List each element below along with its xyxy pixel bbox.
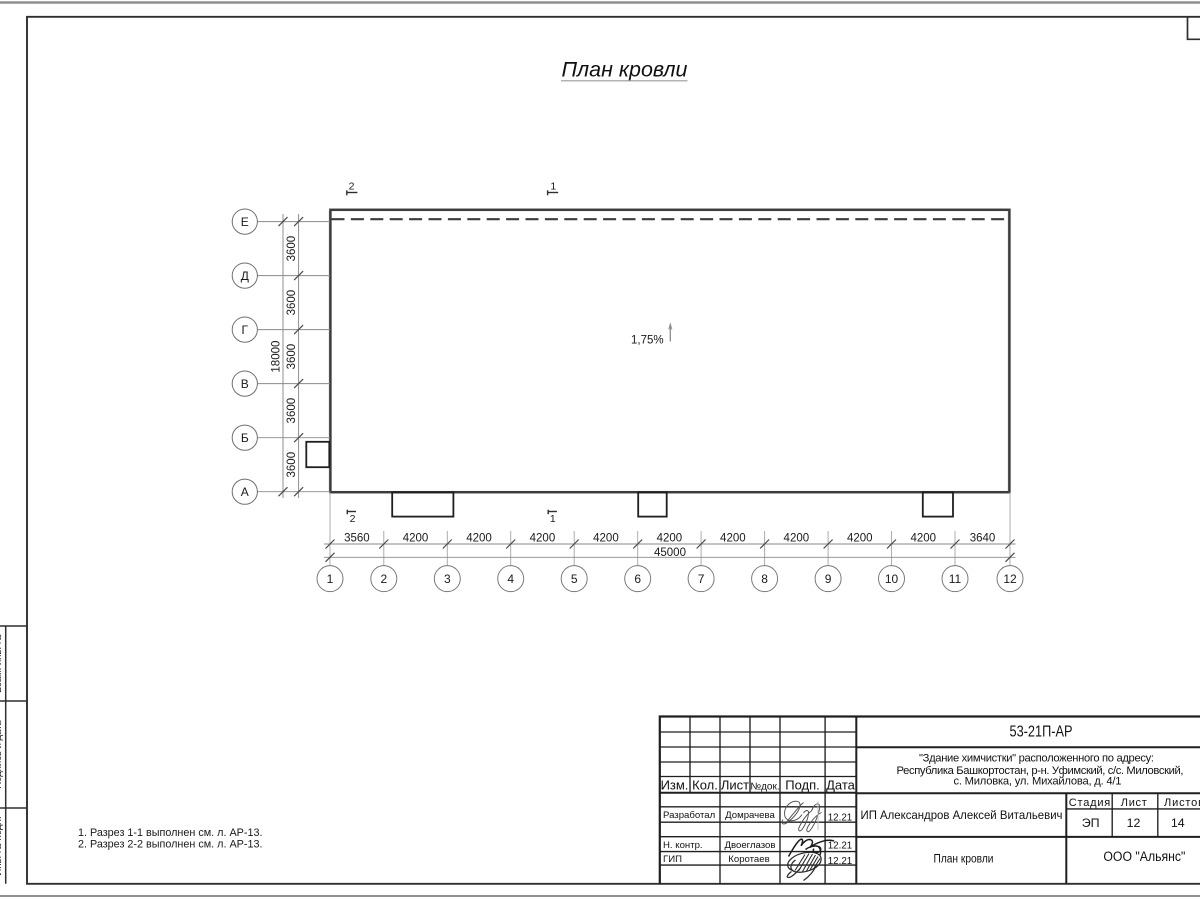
svg-text:3600: 3600 <box>286 344 298 370</box>
svg-text:Коротаев: Коротаев <box>728 854 769 865</box>
svg-text:4: 4 <box>507 572 514 586</box>
svg-text:2. Разрез 2-2 выполнен см. л.: 2. Разрез 2-2 выполнен см. л. АР-13. <box>78 838 262 850</box>
svg-text:12: 12 <box>1127 816 1141 830</box>
svg-text:4200: 4200 <box>910 533 936 545</box>
svg-text:6: 6 <box>634 572 641 586</box>
svg-text:Подп.: Подп. <box>785 778 820 793</box>
svg-text:2: 2 <box>350 513 356 525</box>
svg-text:Б: Б <box>241 431 249 445</box>
svg-text:Н. контр.: Н. контр. <box>663 840 703 851</box>
svg-text:12.21: 12.21 <box>828 856 853 867</box>
svg-text:1: 1 <box>550 181 556 193</box>
svg-text:2: 2 <box>349 181 355 193</box>
svg-text:12: 12 <box>1003 572 1017 586</box>
svg-text:3560: 3560 <box>344 533 370 545</box>
svg-text:План кровли: План кровли <box>934 854 994 866</box>
svg-text:4200: 4200 <box>657 533 683 545</box>
svg-text:10: 10 <box>885 572 899 586</box>
svg-text:7: 7 <box>698 572 705 586</box>
svg-text:Взам. инв. №: Взам. инв. № <box>0 634 4 693</box>
svg-text:с. Миловка, ул. Михайлова, д.: с. Миловка, ул. Михайлова, д. 4/1 <box>954 776 1122 788</box>
svg-text:Листов: Листов <box>1164 797 1200 809</box>
svg-text:Д: Д <box>241 269 249 283</box>
svg-text:4200: 4200 <box>593 533 619 545</box>
svg-text:Изм.: Изм. <box>661 778 689 793</box>
svg-text:Лист: Лист <box>1121 797 1147 809</box>
svg-text:Г: Г <box>242 323 249 337</box>
svg-text:План кровли: План кровли <box>562 58 688 81</box>
svg-text:Е: Е <box>241 215 249 229</box>
svg-text:12.21: 12.21 <box>828 841 853 852</box>
svg-text:1. Разрез 1-1 выполнен см. л.: 1. Разрез 1-1 выполнен см. л. АР-13. <box>78 827 262 839</box>
svg-text:14: 14 <box>1171 816 1185 830</box>
svg-text:ГИП: ГИП <box>663 854 682 865</box>
svg-text:Стадия: Стадия <box>1069 797 1111 809</box>
svg-text:3600: 3600 <box>286 236 298 262</box>
svg-text:2: 2 <box>380 572 387 586</box>
svg-text:5: 5 <box>571 572 578 586</box>
svg-text:Разработал: Разработал <box>663 810 715 821</box>
svg-text:Дата: Дата <box>826 778 856 793</box>
svg-text:Лист: Лист <box>721 778 749 793</box>
svg-text:3600: 3600 <box>286 398 298 424</box>
svg-text:Кол.: Кол. <box>692 778 718 793</box>
svg-text:ИП Александров Алексей Виталье: ИП Александров Алексей Витальевич <box>861 809 1063 822</box>
svg-text:18000: 18000 <box>271 341 283 373</box>
svg-text:А: А <box>241 485 249 499</box>
svg-text:12.21: 12.21 <box>828 812 853 823</box>
svg-text:1: 1 <box>327 572 334 586</box>
svg-text:Инв. № подл.: Инв. № подл. <box>0 816 4 875</box>
svg-text:3600: 3600 <box>286 290 298 316</box>
svg-text:"Здание химчистки" расположенн: "Здание химчистки" расположенного по адр… <box>919 753 1154 765</box>
svg-text:3640: 3640 <box>970 533 996 545</box>
svg-text:4200: 4200 <box>784 533 810 545</box>
svg-text:53-21П-АР: 53-21П-АР <box>1010 724 1073 741</box>
svg-text:4200: 4200 <box>403 533 429 545</box>
svg-text:4200: 4200 <box>530 533 556 545</box>
svg-text:3600: 3600 <box>286 452 298 478</box>
svg-text:ООО "Альянс": ООО "Альянс" <box>1103 849 1185 864</box>
svg-text:Домрачева: Домрачева <box>725 810 775 821</box>
svg-text:11: 11 <box>949 572 962 586</box>
svg-text:ЭП: ЭП <box>1082 816 1100 830</box>
svg-text:4200: 4200 <box>847 533 873 545</box>
svg-text:45000: 45000 <box>654 547 686 559</box>
svg-text:9: 9 <box>825 572 832 586</box>
svg-text:1,75%: 1,75% <box>631 335 664 347</box>
svg-text:4200: 4200 <box>466 533 492 545</box>
svg-text:Подпись и дата: Подпись и дата <box>0 720 4 789</box>
svg-text:8: 8 <box>761 572 768 586</box>
svg-text:3: 3 <box>444 572 451 586</box>
svg-text:Двоеглазов: Двоеглазов <box>725 840 776 851</box>
svg-text:№док.: №док. <box>750 782 779 793</box>
svg-text:4200: 4200 <box>720 533 746 545</box>
svg-text:1: 1 <box>550 513 556 525</box>
svg-text:В: В <box>241 377 249 391</box>
